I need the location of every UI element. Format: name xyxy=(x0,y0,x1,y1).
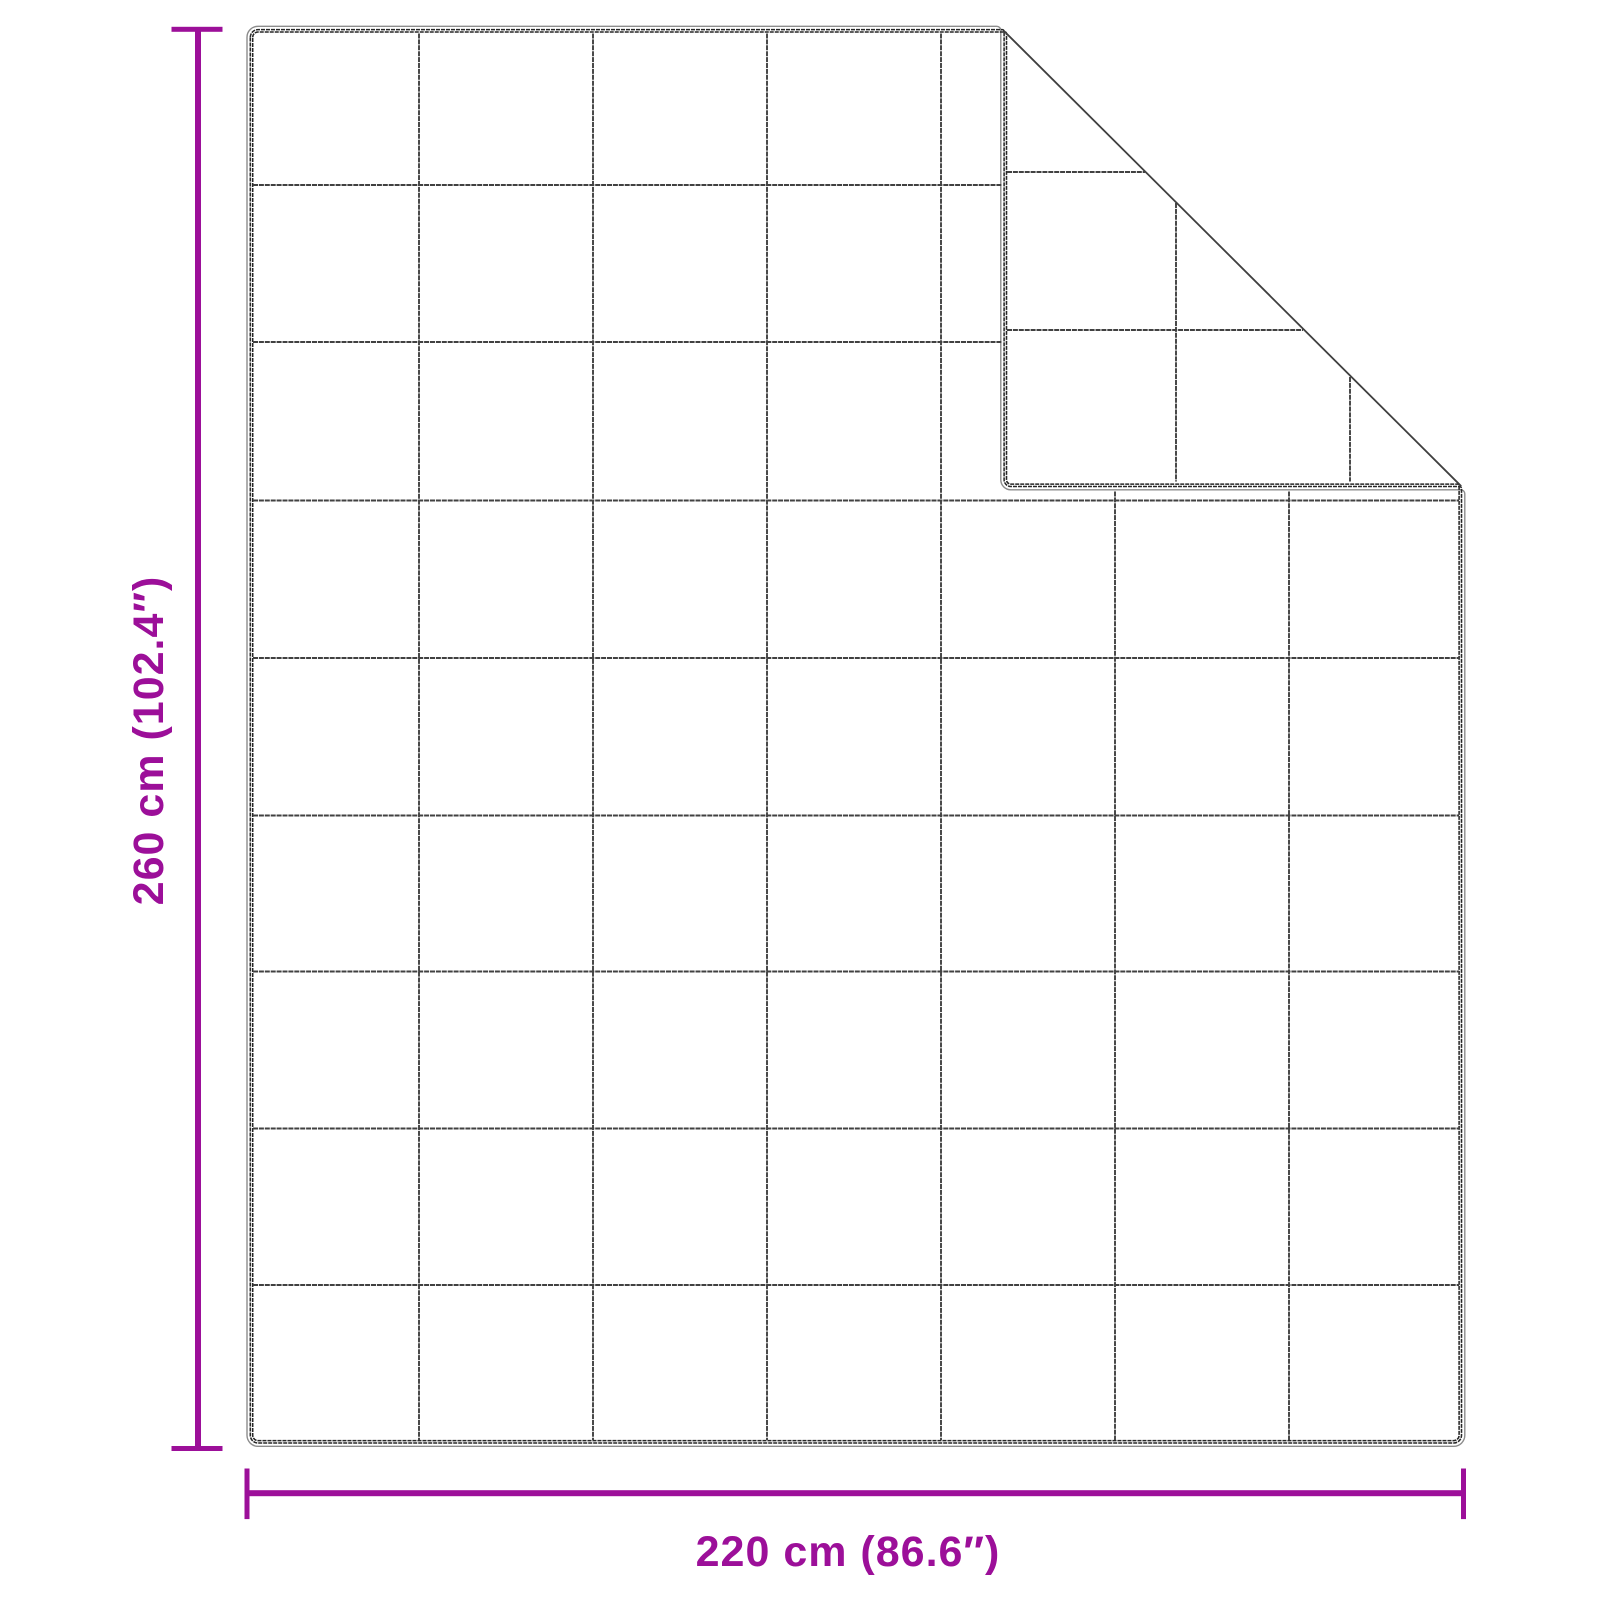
svg-text:260 cm (102.4″): 260 cm (102.4″) xyxy=(125,576,173,906)
svg-text:220 cm (86.6″): 220 cm (86.6″) xyxy=(696,1528,1001,1576)
